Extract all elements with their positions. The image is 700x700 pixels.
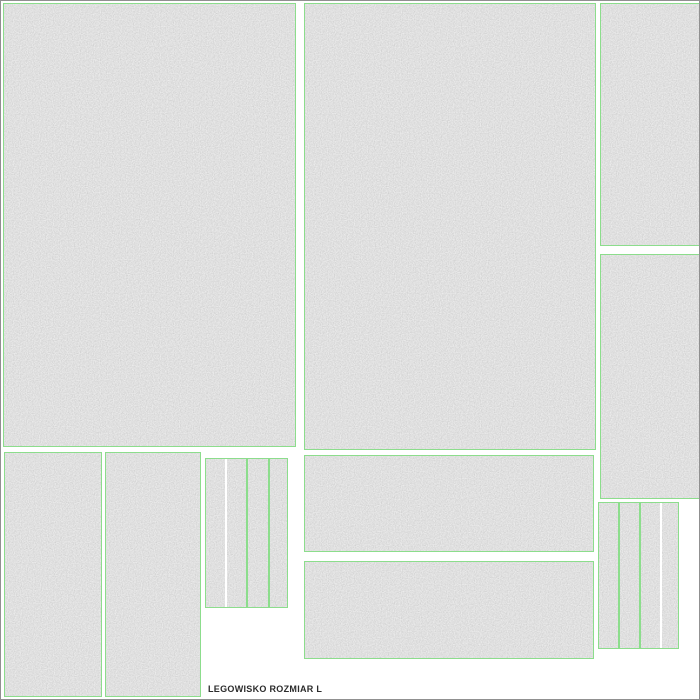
pattern-piece-top-right [600, 3, 700, 246]
strip-divider [225, 459, 227, 607]
sheet-title-label: LEGOWISKO ROZMIAR L [208, 684, 322, 694]
pattern-piece-top-left [3, 3, 296, 447]
fabric-texture [601, 255, 699, 498]
fabric-texture [305, 456, 593, 551]
fabric-texture [5, 453, 101, 696]
pattern-piece-top-center [304, 3, 596, 450]
pattern-piece-band-lower [304, 561, 594, 659]
fabric-texture [305, 4, 595, 449]
strip-divider [246, 459, 248, 607]
pattern-piece-bottom-left-b [105, 452, 201, 697]
strip-divider [639, 503, 641, 648]
fabric-texture [4, 4, 295, 446]
pattern-piece-band-upper [304, 455, 594, 552]
pattern-layout-sheet: LEGOWISKO ROZMIAR L [0, 0, 700, 700]
pattern-strip-group-left [205, 458, 288, 608]
strip-divider [618, 503, 620, 648]
fabric-texture [601, 4, 699, 245]
pattern-piece-right-middle [600, 254, 700, 499]
pattern-piece-bottom-left-a [4, 452, 102, 697]
pattern-strip-group-right [598, 502, 679, 649]
fabric-texture [106, 453, 200, 696]
fabric-texture [305, 562, 593, 658]
strip-divider [268, 459, 270, 607]
strip-divider [660, 503, 662, 648]
